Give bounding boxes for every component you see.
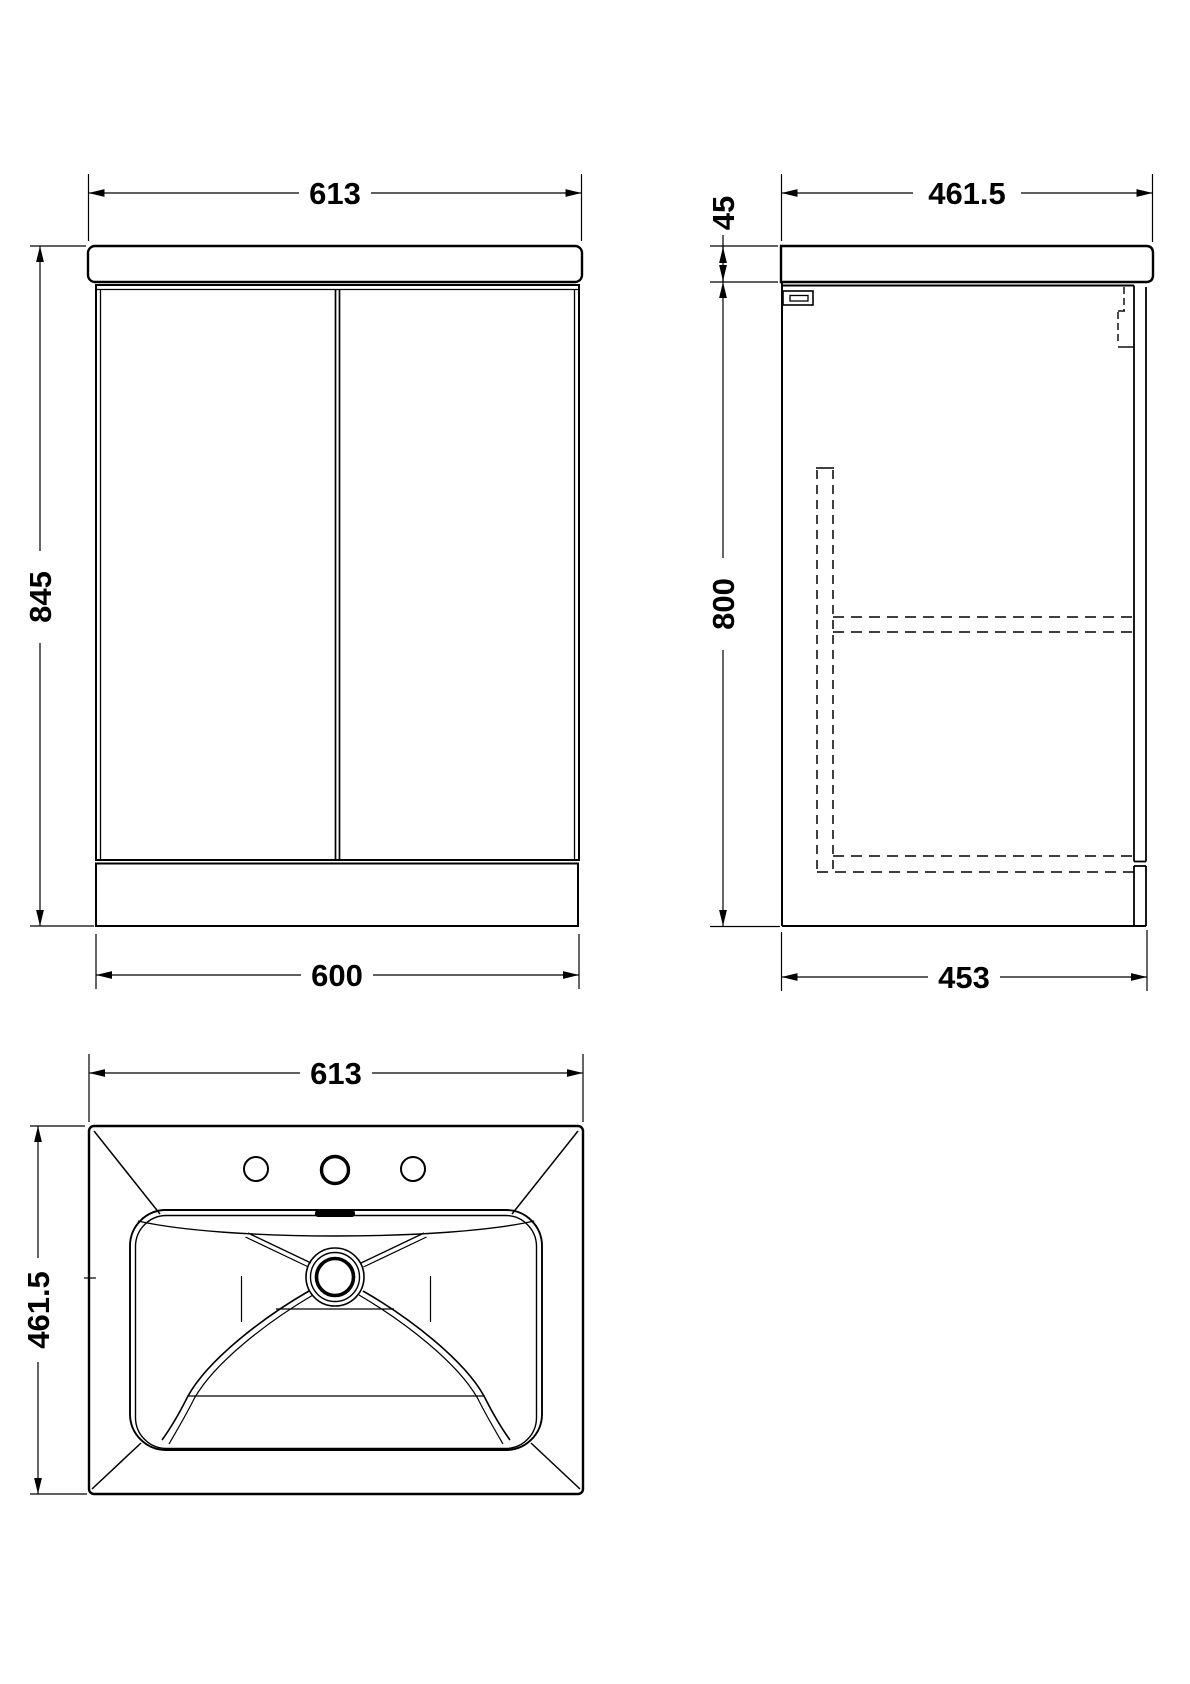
side-height-dimension-label: 800: [706, 578, 741, 630]
hinge-recess: [1118, 287, 1134, 347]
front-plinth: [96, 864, 578, 927]
bowl-back-curve: [138, 1221, 534, 1236]
front-height-dimension: 845: [22, 246, 94, 926]
side-bottom-depth-dimension: 453: [782, 930, 1148, 995]
side-door-panel: [1134, 286, 1146, 927]
bowl-rim-outer: [130, 1210, 542, 1450]
hinge-plate-slot: [790, 296, 808, 302]
top-width-dimension-label: 613: [310, 1056, 362, 1091]
tap-hole-center: [322, 1157, 349, 1184]
tap-hole-left: [244, 1157, 268, 1181]
hidden-interior-panel: [816, 468, 834, 872]
side-view: 461.5 45 800 453: [705, 174, 1153, 995]
top-view: 613 461.5: [20, 1054, 583, 1494]
top-width-dimension: 613: [89, 1054, 583, 1122]
side-bottom-depth-dimension-label: 453: [938, 960, 990, 995]
side-counter-thickness-dimension: 45: [705, 191, 778, 282]
drawing-sheet: 613 845 600: [0, 0, 1190, 1684]
side-counter-thickness-label: 45: [706, 196, 741, 230]
top-depth-dimension-label: 461.5: [21, 1271, 56, 1349]
side-height-dimension: 800: [705, 282, 780, 927]
bowl-rim-inner: [136, 1216, 537, 1449]
front-width-dimension-label: 613: [309, 176, 361, 211]
side-countertop: [781, 246, 1153, 282]
vanity-technical-drawing: 613 845 600: [0, 0, 1190, 1684]
front-cabinet: [96, 285, 579, 860]
front-height-dimension-label: 845: [23, 571, 58, 623]
hidden-bottom-board: [817, 856, 1134, 872]
top-depth-dimension: 461.5: [20, 1126, 87, 1494]
hidden-shelf: [833, 617, 1134, 632]
side-depth-dimension: 461.5: [782, 174, 1153, 242]
front-countertop: [88, 246, 582, 282]
front-bottom-width-dimension: 600: [96, 934, 579, 993]
side-depth-dimension-label: 461.5: [928, 176, 1006, 211]
bowl-contours: [162, 1233, 510, 1444]
tap-hole-right: [401, 1157, 425, 1181]
front-width-dimension: 613: [89, 174, 582, 241]
overflow-slot: [315, 1210, 355, 1217]
drain: [306, 1248, 364, 1306]
front-view: 613 845 600: [22, 174, 582, 993]
front-bottom-width-dimension-label: 600: [311, 958, 363, 993]
